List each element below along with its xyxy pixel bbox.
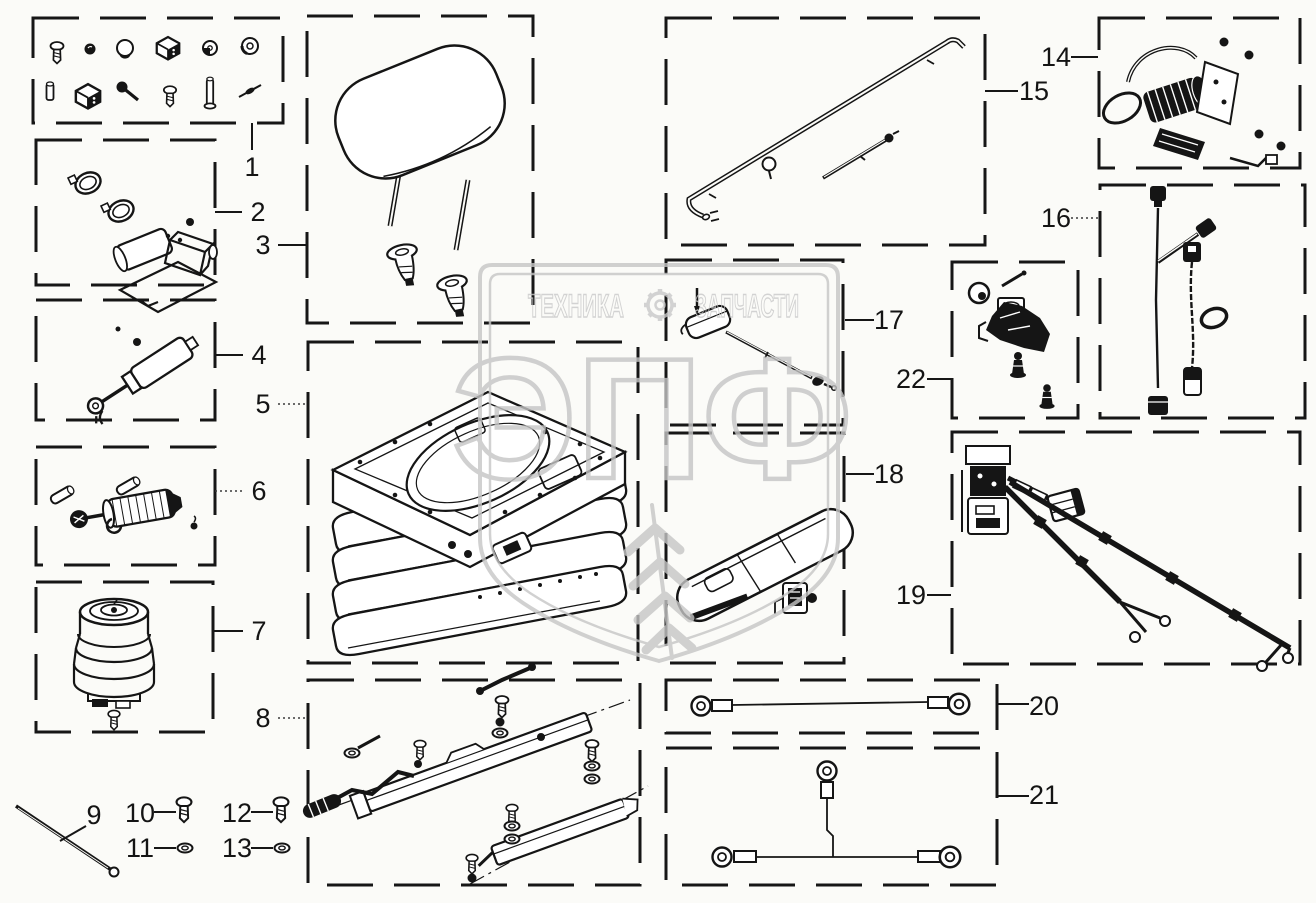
diagram-canvas: ТЕХНИКА ЗАПЧАСТИ ЭПФ <box>0 0 1316 903</box>
callout-label-2: 2 <box>250 197 265 227</box>
panel-15-box <box>666 18 985 245</box>
watermark-brand-left: ТЕХНИКА <box>528 288 624 324</box>
air-pipe-drawing <box>689 40 964 221</box>
pneumatic-cylinder-drawing <box>49 476 197 535</box>
callout-label-8: 8 <box>255 703 270 733</box>
callout-label-13: 13 <box>222 833 252 863</box>
callout-label-19: 19 <box>896 580 926 610</box>
callout-label-16: 16 <box>1041 203 1071 233</box>
callout-label-10: 10 <box>125 798 155 828</box>
ground-cable-y-drawing <box>713 762 961 868</box>
valve-bracket-drawing <box>969 271 1055 409</box>
callout-label-18: 18 <box>874 459 904 489</box>
panel-1-box <box>33 18 283 123</box>
headrest-guide-sleeve <box>386 242 424 289</box>
callout-label-22: 22 <box>896 364 926 394</box>
ground-strap-drawing <box>692 694 970 716</box>
panel-16-box <box>1100 185 1305 418</box>
headrest-drawing <box>322 32 519 320</box>
air-spring-drawing <box>74 599 154 730</box>
callout-label-21: 21 <box>1029 780 1059 810</box>
compressor-unit-drawing <box>68 166 217 312</box>
hardware-kit-drawing <box>47 37 262 109</box>
parts-diagram-page: ТЕХНИКА ЗАПЧАСТИ ЭПФ <box>0 0 1316 903</box>
callout-label-9: 9 <box>86 800 101 830</box>
leader-line-9 <box>60 826 86 841</box>
callout-label-11: 11 <box>126 833 154 863</box>
callout-label-17: 17 <box>874 305 904 335</box>
seat-rails-drawing <box>301 663 648 884</box>
callout-label-14: 14 <box>1041 42 1071 72</box>
gear-icon <box>644 289 676 321</box>
compressor-assembly-drawing <box>1098 38 1285 167</box>
watermark-logo-letters: ЭПФ <box>452 323 852 515</box>
shock-absorber-drawing <box>81 327 205 427</box>
callout-label-20: 20 <box>1029 691 1059 721</box>
callout-label-5: 5 <box>255 389 270 419</box>
watermark-brand-right: ЗАПЧАСТИ <box>695 288 799 324</box>
callout-label-4: 4 <box>251 340 266 370</box>
callout-label-15: 15 <box>1019 76 1049 106</box>
headrest-guide-sleeve <box>436 273 474 320</box>
callout-label-7: 7 <box>251 616 266 646</box>
sensor-harness-drawing <box>1148 186 1229 415</box>
main-harness-drawing <box>962 446 1293 671</box>
callout-label-12: 12 <box>222 798 252 828</box>
callout-label-3: 3 <box>255 230 270 260</box>
callout-label-1: 1 <box>244 152 259 182</box>
callout-label-6: 6 <box>251 476 266 506</box>
